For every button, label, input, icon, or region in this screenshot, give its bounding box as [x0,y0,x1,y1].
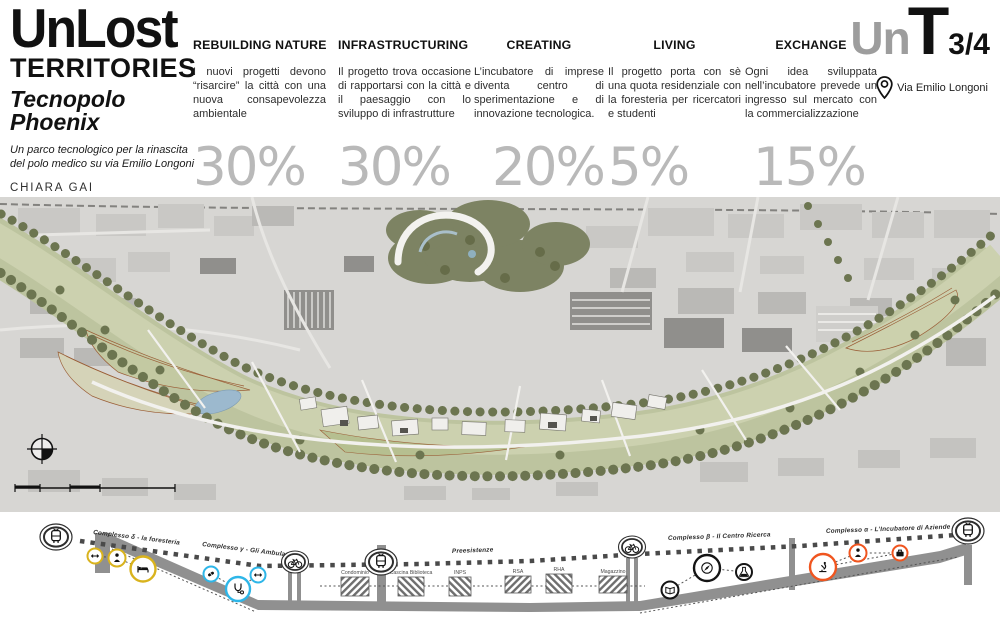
principle-column-creating: CREATING L’incubatore di imprese diventa… [474,38,604,198]
bike-station-east [619,536,646,558]
unt-logo-t: T [908,4,950,58]
tram-stop-west [40,524,72,550]
principle-text: I nuovi progetti devono “risarcire” la c… [193,65,326,121]
project-name-line2: Phoenix [10,111,196,134]
principle-text: Il progetto trova occasione di rapportar… [338,65,471,121]
existing-label: Cascina Biblioteca [390,570,433,576]
poster-title-line1: UnLost [10,2,185,54]
poster-title-line2: TERRITORIES [10,54,196,82]
existing-building-box [505,576,531,593]
segment-label-preesistenze: Preesistenze [452,547,494,555]
book-icon [666,587,674,593]
existing-building-box [341,577,369,596]
principle-percent: 20% [492,137,604,198]
poster-board: UnLost TERRITORIES Tecnopolo Phoenix Un … [0,0,1000,625]
principle-percent: 30% [193,137,305,198]
program-bubble [850,545,867,562]
existing-label: RSA [513,569,524,575]
section-diagram: Condominio Cascina Biblioteca INPS RSA R… [0,512,1000,625]
project-name-line1: Tecnopolo [10,88,196,111]
principle-text: Il progetto porta con sè una quota resid… [608,65,741,121]
segment-label-incubatore: Complesso α - L’Incubatore di Aziende [826,524,951,535]
principle-text: L’incubatore di imprese diventa centro d… [474,65,604,121]
unt-logo: Un T 3/4 [850,4,990,65]
principle-title: REBUILDING NATURE [193,38,326,52]
tram-icon [964,523,973,537]
tram-stop-east [952,518,984,544]
principle-title: INFRASTRUCTURING [338,38,471,52]
tram-stop-center [365,549,397,575]
existing-building-box [546,574,572,593]
brand-block: UnLost TERRITORIES Tecnopolo Phoenix Un … [10,2,196,194]
site-plan-map [0,197,1000,512]
principle-column-rebuilding-nature: REBUILDING NATURE I nuovi progetti devon… [193,38,326,198]
principle-title: CREATING [474,38,604,52]
tram-icon [52,529,61,543]
location-pin-icon [876,76,893,99]
principle-title: LIVING [608,38,741,52]
principle-percent: 30% [338,137,450,198]
address-text: Via Emilio Longoni [897,82,988,94]
program-bubble [109,550,126,567]
principle-percent: 15% [753,137,865,198]
principle-column-infrastructuring: INFRASTRUCTURING Il progetto trova occas… [338,38,471,198]
existing-label: Magazzino [600,569,625,575]
existing-building-box [449,577,471,596]
tram-icon [377,554,386,568]
existing-label: Condominio [341,570,369,576]
program-bubble [736,564,752,580]
unt-logo-fraction: 3/4 [948,28,990,62]
segment-label-centro-ricerca: Complesso β - Il Centro Ricerca [668,531,771,542]
existing-label: RHA [554,567,565,573]
principle-percent: 5% [608,137,688,198]
address-row: Via Emilio Longoni [876,76,988,99]
existing-label: INPS [454,570,467,576]
program-bubble [226,577,250,601]
author-name: CHIARA GAI [10,182,196,194]
existing-building-box [599,576,627,593]
unt-logo-un: Un [850,11,909,65]
existing-building-box [398,577,424,596]
principle-text: Ogni idea sviluppata nell’incubatore pre… [745,65,877,121]
project-description: Un parco tecnologico per la rinascita de… [10,143,196,172]
bike-station-west [282,551,309,573]
principle-column-living: LIVING Il progetto porta con sè una quot… [608,38,741,198]
